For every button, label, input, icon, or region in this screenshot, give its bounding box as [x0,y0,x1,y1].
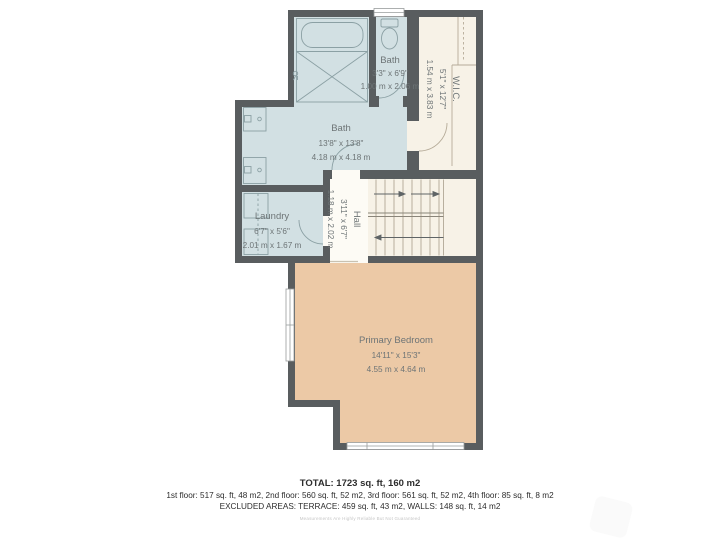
svg-text:5'1" x 12'7": 5'1" x 12'7" [438,69,447,109]
stairwell-floor [368,179,476,256]
floor-plan-drawing: Bath 13'8" x 13'8" 4.18 m x 4.18 m Bath … [0,0,720,540]
door-opening-bath-main [332,170,360,179]
svg-text:3'3" x 6'9": 3'3" x 6'9" [372,69,408,78]
svg-text:3'11" x 6'7": 3'11" x 6'7" [339,199,348,239]
window-bath-small-top [374,9,404,17]
svg-text:4.55 m x 4.64 m: 4.55 m x 4.64 m [367,365,426,374]
svg-text:Laundry: Laundry [255,211,290,222]
svg-text:2.01 m x 1.67 m: 2.01 m x 1.67 m [243,241,302,250]
svg-text:1.54 m x 3.83 m: 1.54 m x 3.83 m [425,60,434,119]
svg-text:14'11" x 15'3": 14'11" x 15'3" [372,351,421,360]
svg-text:13'8" x 13'8": 13'8" x 13'8" [319,139,364,148]
svg-text:1.00 m x 2.06 m: 1.00 m x 2.06 m [361,82,420,91]
svg-text:Hall: Hall [351,211,362,227]
svg-text:4.18 m x 4.18 m: 4.18 m x 4.18 m [312,153,371,162]
window-bedroom-bottom [347,443,464,450]
svg-text:1.18 m x 2.02 m: 1.18 m x 2.02 m [326,190,335,249]
window-bedroom-left [286,289,294,361]
door-opening-wic [407,121,419,151]
svg-text:Bath: Bath [331,123,351,134]
total-area-text: TOTAL: 1723 sq. ft, 160 m2 [0,478,720,490]
svg-text:Bath: Bath [380,55,400,66]
svg-text:6'7" x 5'6": 6'7" x 5'6" [254,227,290,236]
svg-text:Primary Bedroom: Primary Bedroom [359,335,433,346]
floor-plan-page: Bath 13'8" x 13'8" 4.18 m x 4.18 m Bath … [0,0,720,540]
svg-text:W.I.C.: W.I.C. [450,76,461,102]
